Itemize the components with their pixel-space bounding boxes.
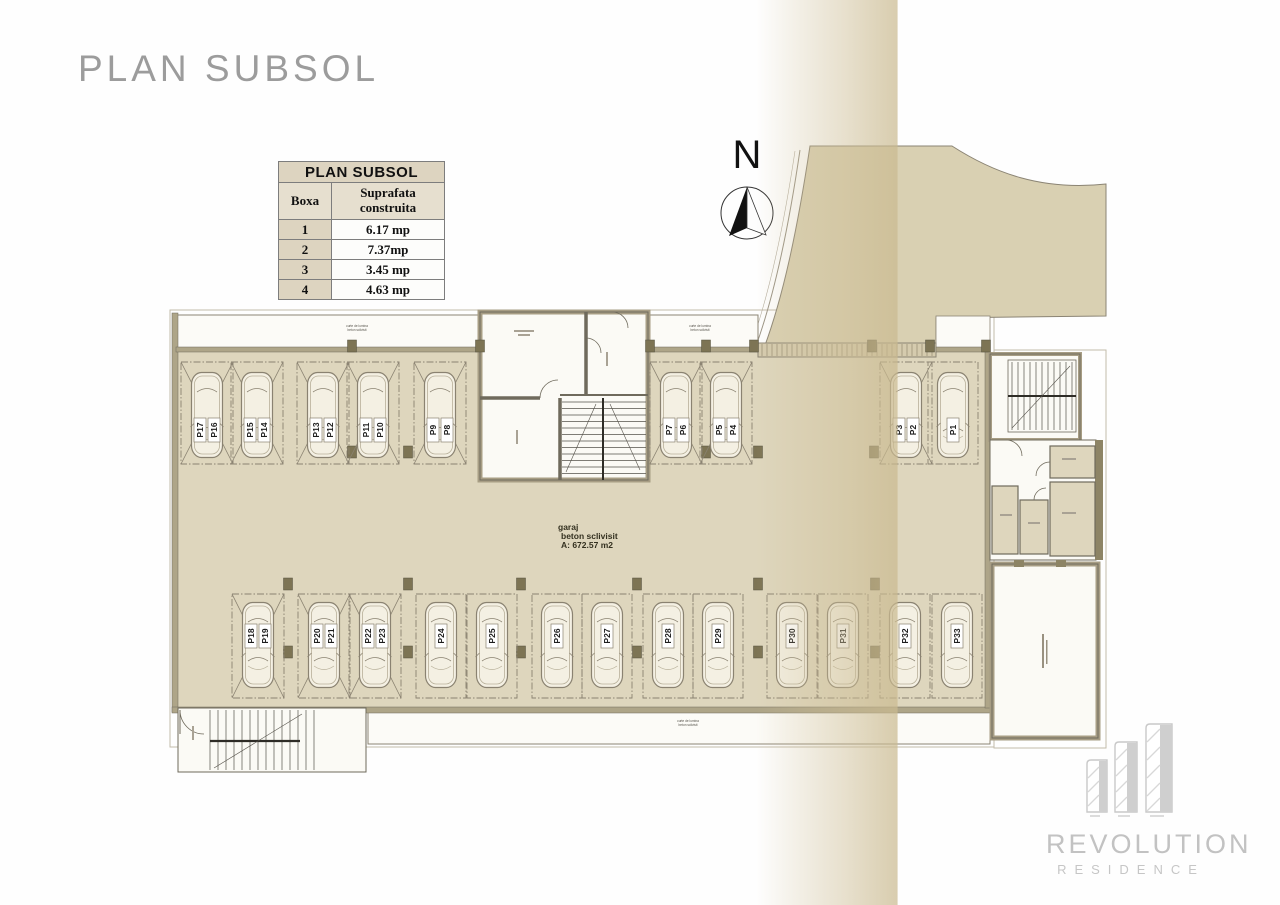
spot-label: P27 xyxy=(602,628,612,643)
spot-label: P13 xyxy=(311,422,321,437)
column xyxy=(633,646,642,658)
spot-label: P11 xyxy=(361,422,371,437)
buildings-icon xyxy=(1046,720,1216,820)
spot-label: P18 xyxy=(246,628,256,643)
column xyxy=(404,446,413,458)
spot-label: P23 xyxy=(377,628,387,643)
column xyxy=(870,446,879,458)
spot-label: P32 xyxy=(900,628,910,643)
spot-label: P30 xyxy=(787,628,797,643)
column xyxy=(750,340,759,352)
ramp-room xyxy=(992,560,1098,738)
spot-label: P17 xyxy=(195,422,205,437)
column xyxy=(284,646,293,658)
column xyxy=(754,446,763,458)
small-annotation: beton sclivisit xyxy=(679,723,698,727)
spot-label: P7 xyxy=(664,425,674,436)
spot-label: P25 xyxy=(487,628,497,643)
spot-label: P19 xyxy=(260,628,270,643)
spot-label: P3 xyxy=(894,425,904,436)
entrance-ramp xyxy=(758,343,936,357)
logo-line2: RESIDENCE xyxy=(1046,862,1216,877)
brand-logo: REVOLUTION RESIDENCE xyxy=(1046,720,1216,877)
spot-label: P24 xyxy=(436,628,446,643)
stair-core-right xyxy=(990,354,1080,440)
column xyxy=(517,646,526,658)
spot-label: P29 xyxy=(713,628,723,643)
spot-label: P21 xyxy=(326,628,336,643)
spot-label: P9 xyxy=(428,425,438,436)
small-annotation: beton sclivisit xyxy=(691,328,710,332)
column xyxy=(926,340,935,352)
spot-label: P20 xyxy=(312,628,322,643)
stair-core-bottom-left xyxy=(178,708,366,772)
column xyxy=(348,340,357,352)
spot-label: P15 xyxy=(245,422,255,437)
spot-label: P31 xyxy=(838,628,848,643)
storage-rooms xyxy=(990,440,1103,560)
spot-label: P8 xyxy=(442,425,452,436)
column xyxy=(868,340,877,352)
column xyxy=(871,578,880,590)
spot-label: P5 xyxy=(714,425,724,436)
column xyxy=(404,578,413,590)
spot-label: P16 xyxy=(209,422,219,437)
column xyxy=(284,578,293,590)
column xyxy=(633,578,642,590)
spot-label: P14 xyxy=(259,422,269,437)
spot-label: P33 xyxy=(952,628,962,643)
spot-label: P28 xyxy=(663,628,673,643)
column xyxy=(702,340,711,352)
spot-label: P26 xyxy=(552,628,562,643)
stair-core-center xyxy=(480,312,648,480)
spot-label: P10 xyxy=(375,422,385,437)
column xyxy=(476,340,485,352)
column xyxy=(517,578,526,590)
column xyxy=(871,646,880,658)
column xyxy=(754,646,763,658)
driveway xyxy=(751,146,1106,348)
column xyxy=(404,646,413,658)
spot-label: P22 xyxy=(363,628,373,643)
column xyxy=(754,578,763,590)
spot-label: P4 xyxy=(728,425,738,436)
spot-label: P2 xyxy=(908,425,918,436)
spot-label: P6 xyxy=(678,425,688,436)
floor-plan-page: PLAN SUBSOL PLAN SUBSOL Boxa Suprafata c… xyxy=(0,0,1280,905)
column xyxy=(982,340,991,352)
spot-label: P1 xyxy=(948,425,958,436)
column xyxy=(646,340,655,352)
spot-label: P12 xyxy=(325,422,335,437)
svg-text:A: 672.57 m2: A: 672.57 m2 xyxy=(561,540,613,550)
small-annotation: beton sclivisit xyxy=(348,328,367,332)
logo-line1: REVOLUTION xyxy=(1046,829,1216,860)
